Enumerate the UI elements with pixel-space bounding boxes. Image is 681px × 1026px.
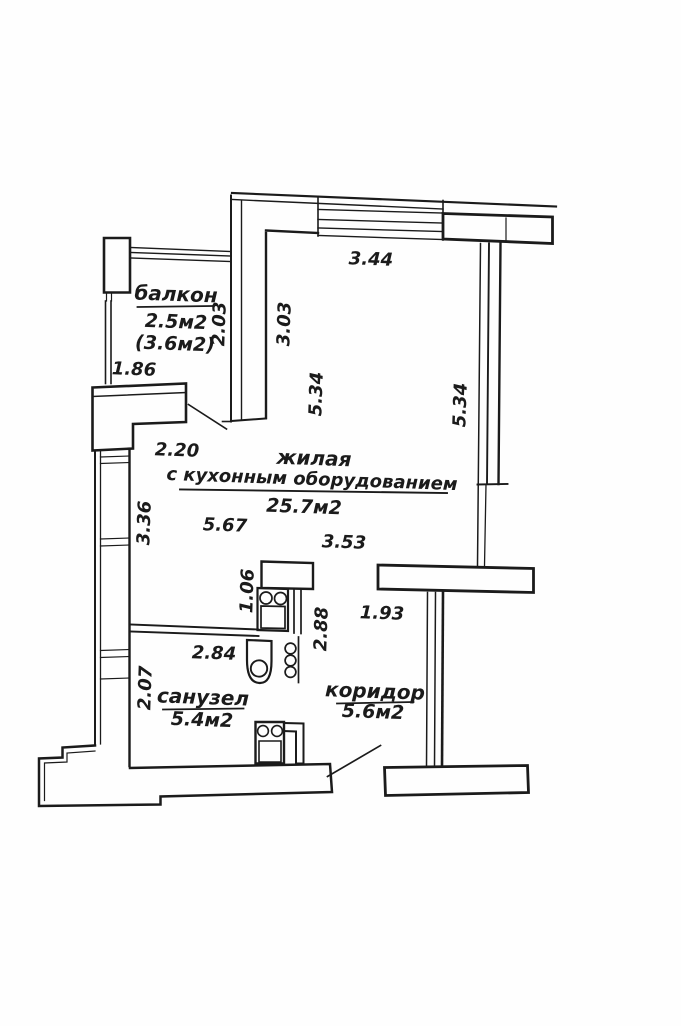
window-line [318,220,443,224]
bathroom-room-label: санузел [157,683,250,710]
bottom-exterior-wall [39,746,332,807]
balcony-pier [104,238,130,293]
kitchen-unit [258,562,314,634]
dim-living-upper-height: 3.03 [273,301,296,346]
plumbing-riser [285,637,298,683]
dim-living-width: 5.67 [202,514,248,537]
right-exterior-wall [478,244,508,567]
dim-balcony-inner-height: 2.03 [208,301,231,346]
window-line [318,236,443,240]
window-line [318,210,443,214]
bathroom-area-label: 5.4м2 [170,708,233,732]
top-exterior-wall [232,193,556,244]
dim-kitchen-unit-width: 1.06 [236,568,259,613]
bathroom-divider-wall [130,625,259,637]
balcony-area-alt-label: (3.6м2) [135,332,216,357]
left-exterior-wall [95,451,130,767]
living-area-label: 25.7м2 [266,495,342,520]
balcony-room-label: балкон [134,281,218,308]
window-line [318,228,443,232]
sink-burner-icon [275,593,287,605]
dim-balcony-width: 1.86 [111,358,156,381]
dim-living-height-left: 5.34 [305,371,328,416]
dim-living-left-lower-height: 3.36 [133,500,156,545]
dim-entry-width: 2.20 [154,439,199,462]
balcony-door-swing [189,405,227,430]
washbasin-unit [256,722,304,764]
dim-top-window-width: 3.44 [348,248,393,271]
dim-bathroom-width: 2.84 [191,642,236,665]
corridor-area-label: 5.6м2 [341,700,404,724]
dim-kitchen-side-height: 2.88 [310,606,333,651]
dim-living-height-right: 5.34 [449,382,472,427]
dim-living-lower-width: 3.53 [321,531,366,554]
floorplan-page: 3.44 балкон 2.5м2 (3.6м2) 2.03 3.03 5.34… [0,0,681,1026]
balcony-area-label: 2.5м2 [144,310,207,334]
kitchen-counter [262,562,314,590]
dim-corridor-passage-width: 1.93 [359,602,404,625]
dim-bathroom-height: 2.07 [134,665,157,711]
floorplan-drawing: 3.44 балкон 2.5м2 (3.6м2) 2.03 3.03 5.34… [0,0,681,1026]
sink-burner-icon [260,592,272,604]
entry-door-swing [328,746,381,777]
toilet [247,640,272,683]
